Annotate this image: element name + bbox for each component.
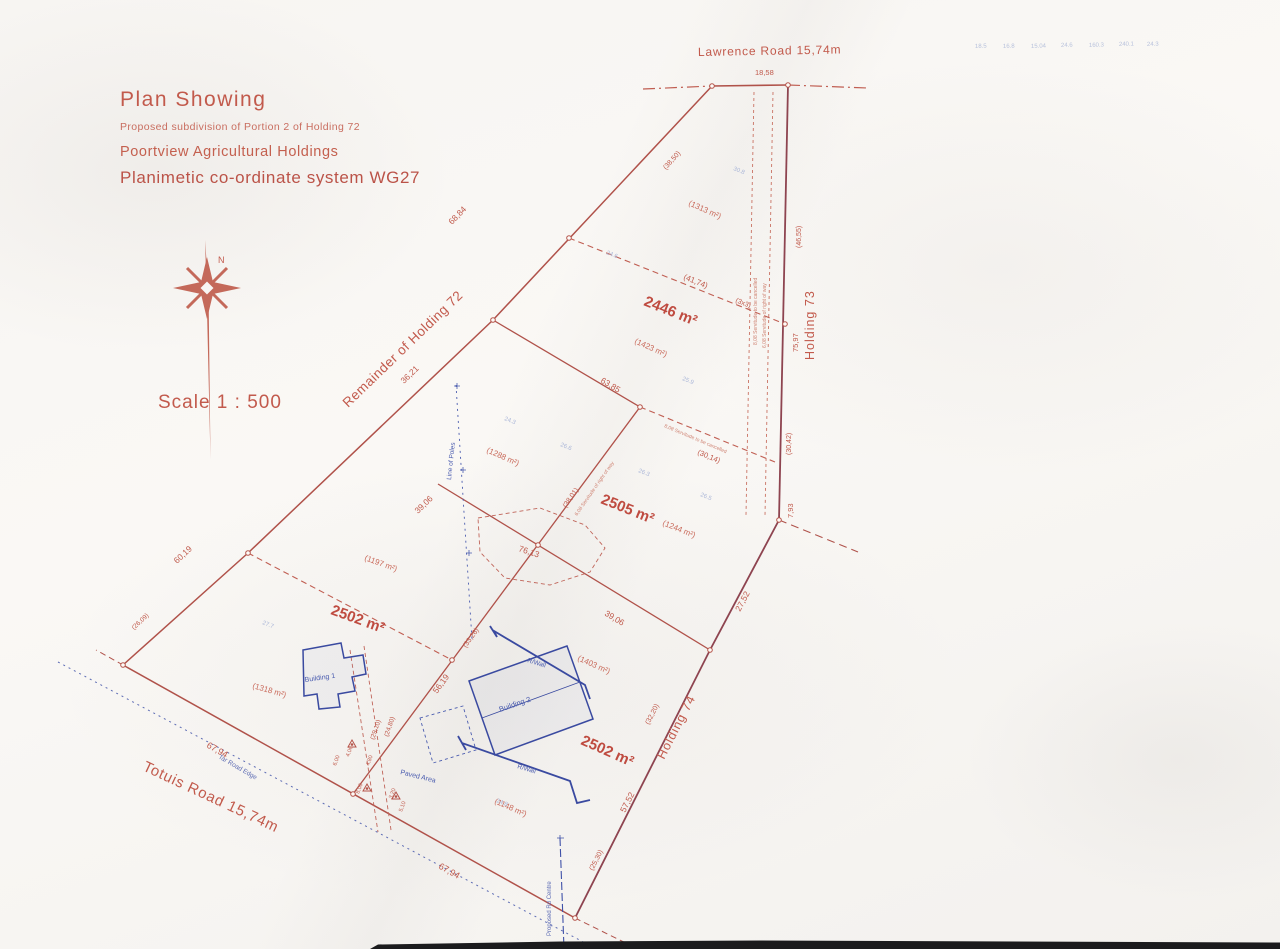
remainder-holding-72-label: Remainder of Holding 72: [340, 288, 466, 411]
svg-text:68,84: 68,84: [446, 204, 468, 226]
holding-73-label: Holding 73: [803, 290, 817, 360]
svg-text:(24,80): (24,80): [383, 716, 396, 738]
lot-area-top: 2446 m²: [642, 293, 700, 330]
svg-text:27.7: 27.7: [261, 620, 275, 630]
north-arrow: N: [173, 240, 241, 460]
svg-text:6,00: 6,00: [332, 755, 341, 767]
svg-text:16.8: 16.8: [1003, 44, 1016, 50]
servitude-note-right-b: 6,08 Servitude of right of way: [762, 283, 768, 348]
svg-text:(38,01): (38,01): [562, 487, 580, 509]
lot-area-left: 2502 m²: [329, 602, 387, 637]
svg-text:(1197 m²): (1197 m²): [363, 553, 398, 573]
svg-text:39,06: 39,06: [603, 608, 627, 628]
site-features: [58, 383, 602, 949]
lot-area-bottom: 2502 m²: [578, 732, 636, 770]
dimension-labels: 18,58 (38,50) (41,74) (3x3) (46,55) 75,9…: [131, 68, 803, 881]
servitude-note-right-a: 8,08 Servitude to be cancelled: [753, 278, 759, 345]
svg-text:26.3: 26.3: [637, 468, 651, 478]
svg-text:36,21: 36,21: [398, 363, 420, 385]
title-block: Plan Showing Proposed subdivision of Por…: [120, 88, 420, 187]
svg-text:27,52: 27,52: [733, 589, 752, 613]
line-of-poles-line: [456, 385, 472, 640]
svg-text:5,10: 5,10: [398, 801, 407, 813]
svg-text:(41,74): (41,74): [682, 273, 709, 291]
plan-coord-system: Planimetic co-ordinate system WG27: [120, 168, 420, 187]
svg-text:18.5: 18.5: [975, 44, 988, 50]
rwall-bottom-label: R/Wall: [516, 763, 537, 775]
svg-text:25.9: 25.9: [681, 376, 695, 386]
svg-text:67,94: 67,94: [205, 740, 230, 760]
svg-text:(26,09): (26,09): [131, 612, 151, 631]
svg-text:(1244 m²): (1244 m²): [661, 519, 697, 540]
svg-text:(1318 m²): (1318 m²): [251, 681, 287, 699]
scan-shadow-bottom: [370, 941, 1280, 949]
svg-text:(1423 m²): (1423 m²): [633, 337, 669, 359]
svg-text:75,97: 75,97: [791, 333, 800, 352]
svg-text:(29,10): (29,10): [369, 719, 382, 741]
svg-text:(32,20): (32,20): [645, 703, 661, 726]
svg-text:30.8: 30.8: [732, 166, 746, 176]
svg-text:(1403 m²): (1403 m²): [576, 654, 612, 676]
plan-holdings-name: Poortview Agricultural Holdings: [120, 144, 338, 160]
svg-text:24.6: 24.6: [605, 250, 619, 260]
svg-text:18,58: 18,58: [755, 68, 774, 77]
svg-text:160.3: 160.3: [1089, 42, 1105, 49]
road-centre-label: Proposed Rd Centre: [547, 881, 553, 936]
svg-text:26.5: 26.5: [699, 492, 713, 502]
line-of-poles-label: Line of Poles: [446, 441, 457, 480]
svg-text:24.3: 24.3: [503, 416, 517, 426]
svg-text:67,94: 67,94: [437, 861, 462, 881]
scale-label: Scale 1 : 500: [158, 392, 282, 413]
svg-text:(30,42): (30,42): [786, 433, 793, 455]
svg-text:(1313 m²): (1313 m²): [687, 199, 723, 221]
plan-canvas: Plan Showing Proposed subdivision of Por…: [0, 0, 1280, 949]
svg-text:56,19: 56,19: [431, 672, 452, 695]
svg-text:26.6: 26.6: [559, 442, 573, 452]
frontage-lawrence: [712, 85, 788, 86]
scanned-plan-page: Plan Showing Proposed subdivision of Por…: [0, 0, 1280, 949]
svg-text:(3x3): (3x3): [734, 297, 751, 309]
faint-number-row: 18.5 16.8 15.04 24.6 160.3 240.1 24.3: [975, 41, 1160, 50]
svg-text:24.3: 24.3: [1147, 42, 1160, 48]
road-centre-line: [560, 838, 564, 949]
outer-boundary: [96, 85, 868, 949]
svg-text:(38,50): (38,50): [662, 150, 682, 171]
svg-text:(25,30): (25,30): [589, 849, 605, 872]
svg-text:4,06: 4,06: [345, 746, 354, 758]
lawrence-road-label: Lawrence Road 15,74m: [698, 42, 842, 59]
svg-text:(46,55): (46,55): [796, 226, 803, 248]
svg-text:24.6: 24.6: [1061, 43, 1074, 49]
paved-area-outline: [420, 706, 476, 763]
paved-area-label: Paved Area: [400, 769, 437, 785]
plan-subtitle: Proposed subdivision of Portion 2 of Hol…: [120, 121, 360, 133]
svg-text:60,19: 60,19: [172, 543, 195, 565]
svg-text:(33,26): (33,26): [462, 627, 481, 649]
svg-text:15.04: 15.04: [1031, 43, 1047, 50]
svg-text:63,85: 63,85: [599, 375, 623, 395]
svg-text:7,93: 7,93: [786, 503, 795, 518]
north-label: N: [218, 255, 225, 265]
svg-text:39,06: 39,06: [412, 493, 434, 515]
plan-title: Plan Showing: [120, 88, 266, 111]
svg-text:(1288 m²): (1288 m²): [485, 446, 521, 468]
lot-area-middle: 2505 m²: [599, 491, 657, 528]
svg-text:3,20: 3,20: [388, 788, 397, 800]
holding-74-label: Holding 74: [654, 693, 698, 762]
svg-text:8,00: 8,00: [355, 783, 364, 795]
svg-text:240.1: 240.1: [1119, 41, 1135, 48]
